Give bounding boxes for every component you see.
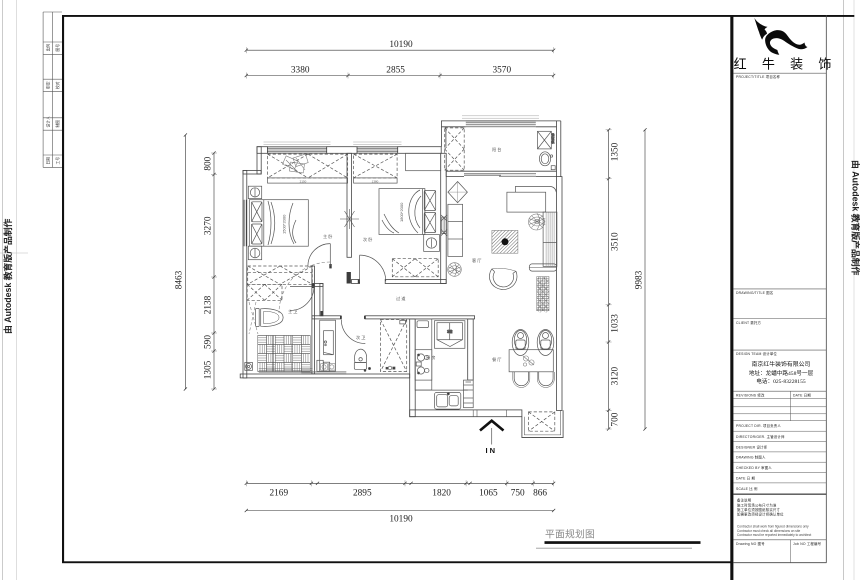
svg-text:地址：龙蟠中路458号一层: 地址：龙蟠中路458号一层 — [749, 369, 814, 377]
svg-text:REVISIONS 修改: REVISIONS 修改 — [736, 392, 765, 397]
svg-text:客厅: 客厅 — [472, 257, 482, 264]
svg-text:3120: 3120 — [611, 366, 621, 385]
svg-text:由 Autodesk 教育版产品制作: 由 Autodesk 教育版产品制作 — [851, 160, 860, 276]
svg-text:2855: 2855 — [386, 65, 405, 75]
svg-text:2138: 2138 — [203, 295, 213, 314]
svg-text:SCALE 比 例: SCALE 比 例 — [736, 486, 758, 491]
svg-text:工号: 工号 — [55, 157, 60, 165]
svg-text:南京红牛装饰有限公司: 南京红牛装饰有限公司 — [752, 360, 811, 368]
svg-text:施工时现场公布尺寸为准: 施工时现场公布尺寸为准 — [737, 502, 777, 507]
svg-text:如需更改须经设计师确认单位: 如需更改须经设计师确认单位 — [737, 512, 784, 517]
svg-text:1820: 1820 — [432, 489, 451, 499]
svg-text:衣: 衣 — [552, 137, 555, 141]
svg-text:IN: IN — [486, 446, 498, 455]
svg-text:DRAWING/TITLE 图名: DRAWING/TITLE 图名 — [736, 290, 773, 295]
svg-text:1350: 1350 — [611, 142, 621, 161]
svg-text:Job NO 工程编号: Job NO 工程编号 — [793, 541, 822, 546]
svg-text:8463: 8463 — [175, 270, 185, 289]
svg-text:1033: 1033 — [611, 314, 621, 333]
svg-text:10190: 10190 — [389, 515, 413, 525]
svg-text:审定: 审定 — [46, 81, 51, 89]
svg-text:电话：025-83228155: 电话：025-83228155 — [756, 377, 806, 385]
svg-text:3270: 3270 — [203, 216, 213, 235]
svg-text:制图: 制图 — [55, 120, 60, 128]
svg-text:设计人: 设计人 — [46, 116, 51, 128]
svg-text:DATE 日 期: DATE 日 期 — [736, 475, 755, 480]
svg-text:比例: 比例 — [46, 44, 51, 52]
svg-text:1065: 1065 — [479, 489, 498, 499]
svg-text:3380: 3380 — [291, 65, 310, 75]
svg-text:10190: 10190 — [389, 40, 413, 50]
svg-text:冰箱: 冰箱 — [447, 330, 453, 334]
svg-text:1305: 1305 — [203, 360, 213, 379]
svg-text:日期: 日期 — [46, 157, 51, 165]
svg-text:700: 700 — [611, 412, 621, 426]
svg-text:1800*2000: 1800*2000 — [399, 202, 404, 222]
svg-text:CLIENT 委托方: CLIENT 委托方 — [736, 320, 762, 325]
svg-text:过道: 过道 — [396, 295, 406, 302]
svg-text:DATE 日期: DATE 日期 — [793, 392, 811, 397]
svg-text:DRAWING 制图人: DRAWING 制图人 — [736, 455, 766, 460]
svg-text:750: 750 — [511, 489, 525, 499]
svg-text:866: 866 — [533, 489, 547, 499]
svg-text:DESIGN TEAM 设计单位: DESIGN TEAM 设计单位 — [736, 351, 777, 356]
svg-text:Drawing NO 图号: Drawing NO 图号 — [736, 541, 765, 546]
svg-text:红 牛 装 饰: 红 牛 装 饰 — [734, 57, 838, 72]
svg-text:机: 机 — [552, 140, 555, 144]
svg-text:1380: 1380 — [372, 180, 379, 184]
svg-text:图号: 图号 — [55, 44, 60, 52]
svg-text:Contractor must be reported im: Contractor must be reported immediately … — [737, 533, 811, 537]
svg-text:平面规划图: 平面规划图 — [545, 528, 595, 541]
svg-text:2169: 2169 — [270, 489, 289, 499]
svg-text:餐厅: 餐厅 — [492, 356, 502, 363]
svg-text:由 Autodesk 教育版产品制作: 由 Autodesk 教育版产品制作 — [2, 218, 13, 334]
svg-text:DESIGNER 设计师: DESIGNER 设计师 — [736, 444, 768, 449]
svg-text:施工单位须按图纸核实尺寸: 施工单位须按图纸核实尺寸 — [737, 507, 780, 512]
svg-text:次卫: 次卫 — [356, 334, 366, 341]
svg-text:次卧: 次卧 — [363, 236, 373, 243]
svg-text:CHECKED BY 审图人: CHECKED BY 审图人 — [736, 465, 772, 470]
svg-text:校对: 校对 — [55, 81, 60, 89]
svg-text:9983: 9983 — [634, 270, 644, 289]
svg-text:1500*2000: 1500*2000 — [282, 214, 287, 234]
svg-text:800: 800 — [203, 156, 213, 170]
svg-text:阳台: 阳台 — [492, 146, 502, 153]
svg-text:备注说明: 备注说明 — [737, 498, 752, 503]
svg-text:590: 590 — [203, 335, 213, 349]
svg-text:2895: 2895 — [353, 489, 372, 499]
svg-text:厨房: 厨房 — [426, 354, 436, 361]
svg-text:主卧: 主卧 — [323, 233, 333, 240]
svg-text:3570: 3570 — [493, 65, 512, 75]
svg-text:PROJECT/TITLE 项目名称: PROJECT/TITLE 项目名称 — [736, 74, 781, 79]
svg-text:洗: 洗 — [552, 133, 555, 137]
svg-text:DIRECTOR/GER. 主管设计师: DIRECTOR/GER. 主管设计师 — [736, 434, 785, 439]
svg-text:2150: 2150 — [300, 180, 307, 184]
svg-text:主卫: 主卫 — [288, 308, 298, 314]
svg-text:3510: 3510 — [611, 232, 621, 251]
svg-text:PROJECT DIR. 项目负责人: PROJECT DIR. 项目负责人 — [736, 423, 781, 428]
